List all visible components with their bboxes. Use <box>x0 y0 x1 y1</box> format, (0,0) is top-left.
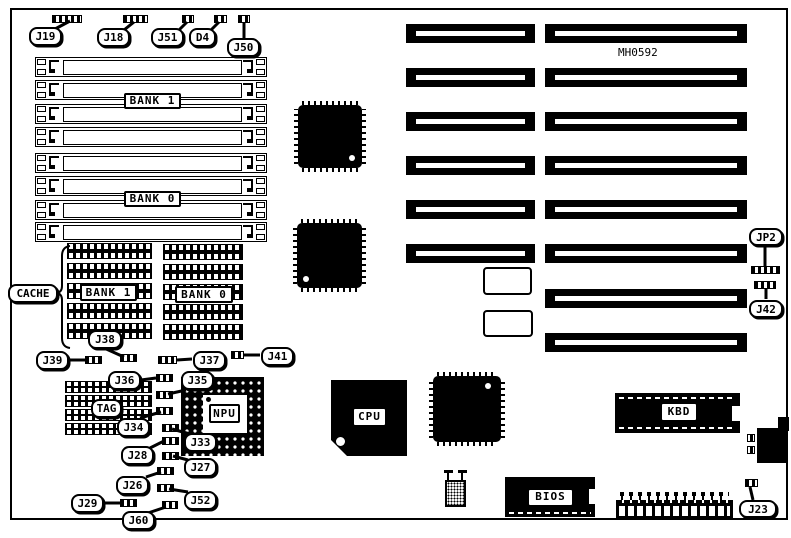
callout-jp2: JP2 <box>749 228 783 246</box>
jumper-block-j29 <box>120 499 137 507</box>
motherboard-diagram: BANK 1 BANK 0 CACHE BANK 1 BANK 0 TAG NP… <box>0 0 791 538</box>
callout-j51: J51 <box>151 28 184 47</box>
pin1-dot-icon <box>303 276 309 282</box>
expansion-slot <box>545 333 747 352</box>
pin1-dot-icon <box>336 437 345 446</box>
npu-label: NPU <box>209 404 240 423</box>
callout-j26: J26 <box>116 476 149 495</box>
callout-j34: J34 <box>117 418 150 437</box>
cache-chip <box>67 263 152 279</box>
jumper-block-j39 <box>85 356 102 364</box>
cache-bank0-label: BANK 0 <box>175 286 233 303</box>
qfp-chip-3 <box>433 376 501 442</box>
cache-chip <box>163 264 243 280</box>
jumper-block-j23 <box>745 479 758 487</box>
memory-bank0-label: BANK 0 <box>124 191 181 207</box>
power-connector <box>616 492 733 519</box>
jumper-block-jp2 <box>751 266 780 274</box>
cpu-chip: CPU <box>331 380 407 456</box>
jumper-block-j51 <box>182 15 194 23</box>
callout-j36: J36 <box>108 371 141 390</box>
cache-chip <box>163 304 243 320</box>
jumper-block-j38 <box>120 354 137 362</box>
keyboard-connector-pin <box>747 446 755 454</box>
callout-j60: J60 <box>122 511 155 530</box>
jumper-block-j18 <box>123 15 148 23</box>
jumper-block-j28 <box>162 437 179 445</box>
callout-j38: J38 <box>88 330 122 349</box>
callout-j42: J42 <box>749 300 783 318</box>
keyboard-connector-pin <box>747 434 755 442</box>
expansion-slot <box>545 112 747 131</box>
jumper-block-j36 <box>156 374 173 382</box>
callout-j37: J37 <box>193 351 226 370</box>
memory-bank1-label: BANK 1 <box>124 93 181 109</box>
pin1-dot-icon <box>349 155 355 161</box>
jumper-block-j27 <box>162 452 179 460</box>
callout-j29: J29 <box>71 494 104 513</box>
expansion-slot <box>545 156 747 175</box>
npu-pin1-dot-icon <box>206 397 211 402</box>
expansion-slot <box>406 156 535 175</box>
keyboard-connector <box>757 428 786 463</box>
callout-j27: J27 <box>184 458 217 477</box>
callout-j19: J19 <box>29 27 62 46</box>
crystal-oscillator <box>444 470 468 508</box>
callout-j35: J35 <box>181 371 214 390</box>
kbd-label: KBD <box>661 403 697 421</box>
qfp-chip-1 <box>298 105 362 168</box>
cpu-label: CPU <box>353 408 386 426</box>
expansion-slot <box>406 244 535 263</box>
simm-socket-4 <box>35 127 267 147</box>
expansion-slot <box>545 68 747 87</box>
simm-socket-5 <box>35 153 267 173</box>
expansion-slot <box>406 112 535 131</box>
callout-j28: J28 <box>121 446 154 465</box>
expansion-slot <box>545 289 747 308</box>
callout-j33: J33 <box>184 433 217 452</box>
expansion-slot <box>545 244 747 263</box>
jumper-block-j26 <box>157 467 174 475</box>
jumper-block-j50 <box>238 15 250 23</box>
qfp-chip-2 <box>297 223 362 288</box>
jumper-block-j35 <box>156 391 173 399</box>
simm-socket-8 <box>35 222 267 242</box>
callout-j50: J50 <box>227 38 260 57</box>
jumper-block-j33 <box>162 424 179 432</box>
expansion-slot <box>545 200 747 219</box>
jumper-block-d4 <box>214 15 227 23</box>
expansion-slot <box>406 200 535 219</box>
jumper-block-j42 <box>754 281 776 289</box>
tag-callout: TAG <box>91 399 122 418</box>
pin1-dot-icon <box>485 383 491 389</box>
expansion-slot <box>406 68 535 87</box>
callout-j39: J39 <box>36 351 69 370</box>
expansion-slot <box>406 24 535 43</box>
callout-j18: J18 <box>97 28 130 47</box>
kbd-chip: KBD <box>615 393 740 433</box>
cache-chip <box>67 303 152 319</box>
expansion-slot <box>545 24 747 43</box>
jumper-block-j52 <box>157 484 174 492</box>
jumper-block-j41 <box>231 351 244 359</box>
callout-j23: J23 <box>739 500 777 518</box>
callout-j52: J52 <box>184 491 217 510</box>
jumper-block-j37 <box>158 356 177 364</box>
cache-chip <box>163 324 243 340</box>
jumper-block-j60 <box>162 501 178 509</box>
bios-chip: BIOS <box>505 477 595 517</box>
cache-chip <box>163 244 243 260</box>
cache-chip <box>67 243 152 259</box>
jumper-block-j19 <box>52 15 82 23</box>
jumper-block-j34 <box>156 407 173 415</box>
empty-socket <box>483 267 532 295</box>
cache-bank1-label: BANK 1 <box>80 284 137 301</box>
callout-d4: D4 <box>189 28 216 47</box>
callout-j41: J41 <box>261 347 294 366</box>
cache-callout: CACHE <box>8 284 58 303</box>
bios-label: BIOS <box>528 489 573 506</box>
simm-socket-1 <box>35 57 267 77</box>
part-number: MH0592 <box>618 46 658 59</box>
empty-socket <box>483 310 533 337</box>
